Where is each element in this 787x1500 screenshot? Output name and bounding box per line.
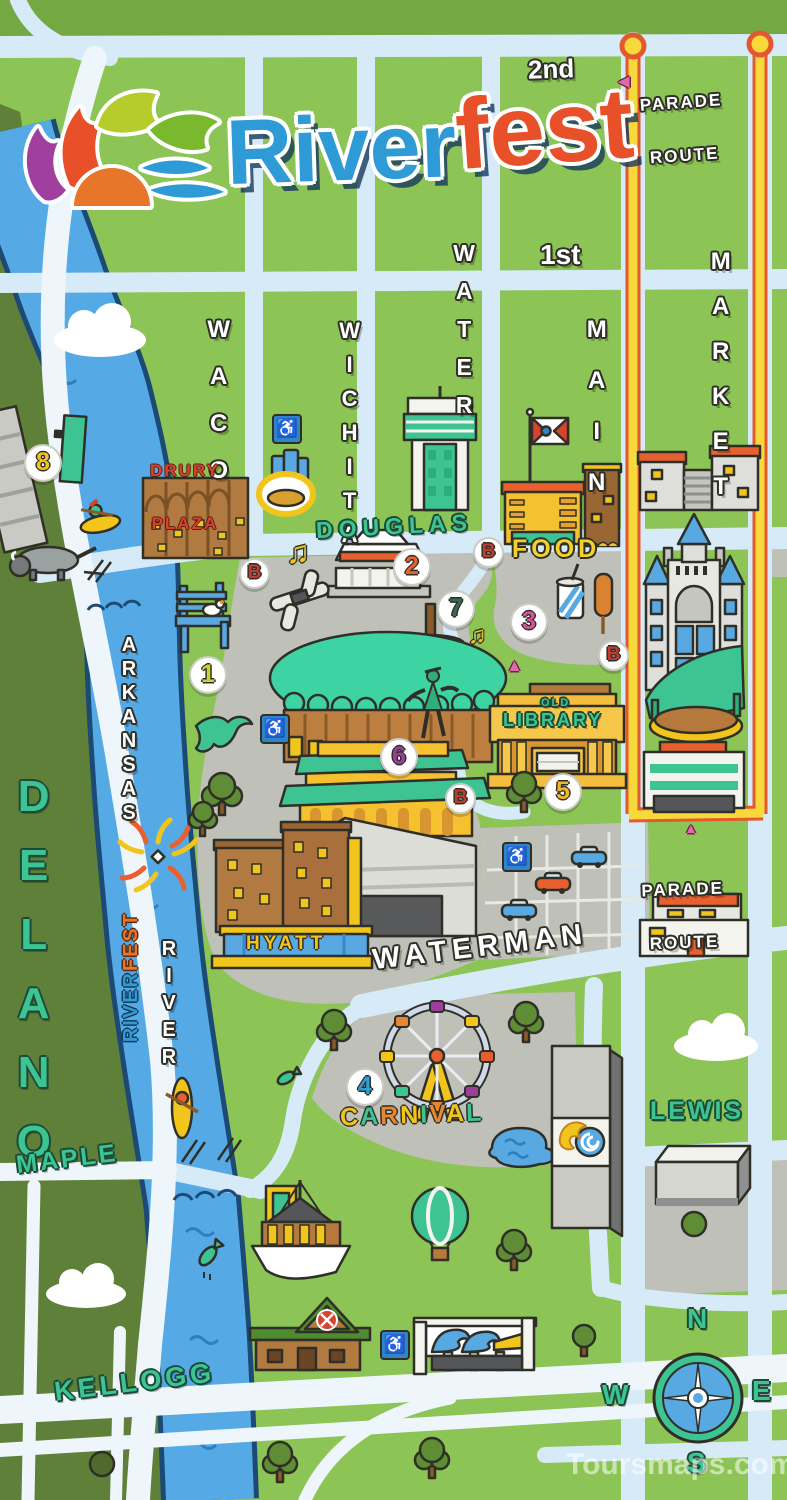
river-label-arkansas: ARKANSAS bbox=[118, 634, 139, 826]
street-label-market: MARKET bbox=[708, 248, 733, 518]
map-marker-5: 5 bbox=[544, 773, 582, 811]
hyatt-label: HYATT bbox=[246, 934, 326, 954]
striped-pavilion bbox=[644, 742, 744, 812]
banner-fest: FEST bbox=[120, 912, 142, 971]
drury-line2: PLAZA bbox=[150, 515, 220, 533]
parade-route-label-mid: PARADE ROUTE bbox=[640, 844, 727, 972]
map-marker-4: 4 bbox=[346, 1068, 384, 1106]
riverfest-logo-text: Riverfest bbox=[224, 79, 636, 208]
arena-building bbox=[552, 1046, 622, 1236]
street-label-main: MAIN bbox=[584, 316, 609, 520]
compass-rose bbox=[654, 1354, 742, 1442]
parade-endpoint-east bbox=[749, 33, 771, 55]
river-label-river: RIVER bbox=[158, 938, 179, 1073]
street-label-1st: 1st bbox=[540, 240, 580, 269]
beverage-marker: B bbox=[598, 640, 629, 671]
parade-route-line1: PARADE bbox=[641, 879, 724, 900]
riverfest-map: Riverfest 2nd PARADE ROUTE ◀ 1st WACO WI… bbox=[0, 0, 787, 1500]
banner-river: RIVER bbox=[120, 971, 142, 1042]
street-label-water: WATER bbox=[452, 240, 476, 430]
map-marker-6: 6 bbox=[380, 738, 418, 776]
accessibility-icon: ♿ bbox=[260, 714, 290, 744]
drury-line1: DRURY bbox=[150, 462, 220, 480]
map-marker-8: 8 bbox=[24, 444, 62, 482]
accessibility-icon: ♿ bbox=[272, 414, 302, 444]
watermark: Toursmaps.com bbox=[566, 1448, 787, 1482]
beverage-marker: B bbox=[473, 537, 504, 568]
compass-north: N bbox=[687, 1304, 707, 1333]
street-label-lewis: LEWIS bbox=[650, 1098, 744, 1124]
compass-west: W bbox=[602, 1380, 628, 1409]
wave-mural-structure bbox=[414, 1318, 536, 1374]
music-note-icon: ♫ bbox=[286, 534, 310, 571]
compass-east: E bbox=[752, 1376, 771, 1405]
food-court-label: FOOD bbox=[512, 536, 600, 562]
drury-plaza-label: DRURY PLAZA bbox=[150, 426, 220, 551]
accessibility-icon: ♿ bbox=[502, 842, 532, 872]
riverfest-banner-vertical: RIVERFEST bbox=[100, 912, 142, 1057]
parade-arrow-left-icon: ◀ bbox=[618, 72, 630, 90]
gray-box-building bbox=[656, 1146, 750, 1206]
district-label-delano: DELANO bbox=[10, 772, 56, 1186]
accessibility-icon: ♿ bbox=[380, 1330, 410, 1360]
street-label-2nd: 2nd bbox=[528, 55, 575, 84]
beverage-marker: B bbox=[445, 783, 476, 814]
parade-endpoint-west bbox=[622, 35, 644, 57]
parade-route-line1: PARADE bbox=[639, 91, 723, 115]
parade-route-line2: ROUTE bbox=[643, 144, 727, 168]
old-library-label-library: LIBRARY bbox=[503, 711, 603, 730]
map-marker-3: 3 bbox=[510, 603, 548, 641]
music-note-icon: ♫ bbox=[468, 622, 486, 650]
info-triangle-icon: ▲ bbox=[506, 656, 523, 676]
north-blocks bbox=[0, 0, 787, 36]
logo-word-fest: fest bbox=[452, 66, 637, 193]
logo-word-river: River bbox=[224, 94, 458, 204]
parade-route-line2: ROUTE bbox=[643, 933, 726, 954]
map-marker-2: 2 bbox=[393, 548, 431, 586]
map-marker-1: 1 bbox=[189, 656, 227, 694]
parade-arrow-up-icon: ▲ bbox=[684, 820, 698, 836]
beverage-marker: B bbox=[239, 558, 270, 589]
old-library-label-old: OLD bbox=[541, 698, 570, 710]
parade-route-label-top: PARADE ROUTE bbox=[637, 55, 728, 185]
